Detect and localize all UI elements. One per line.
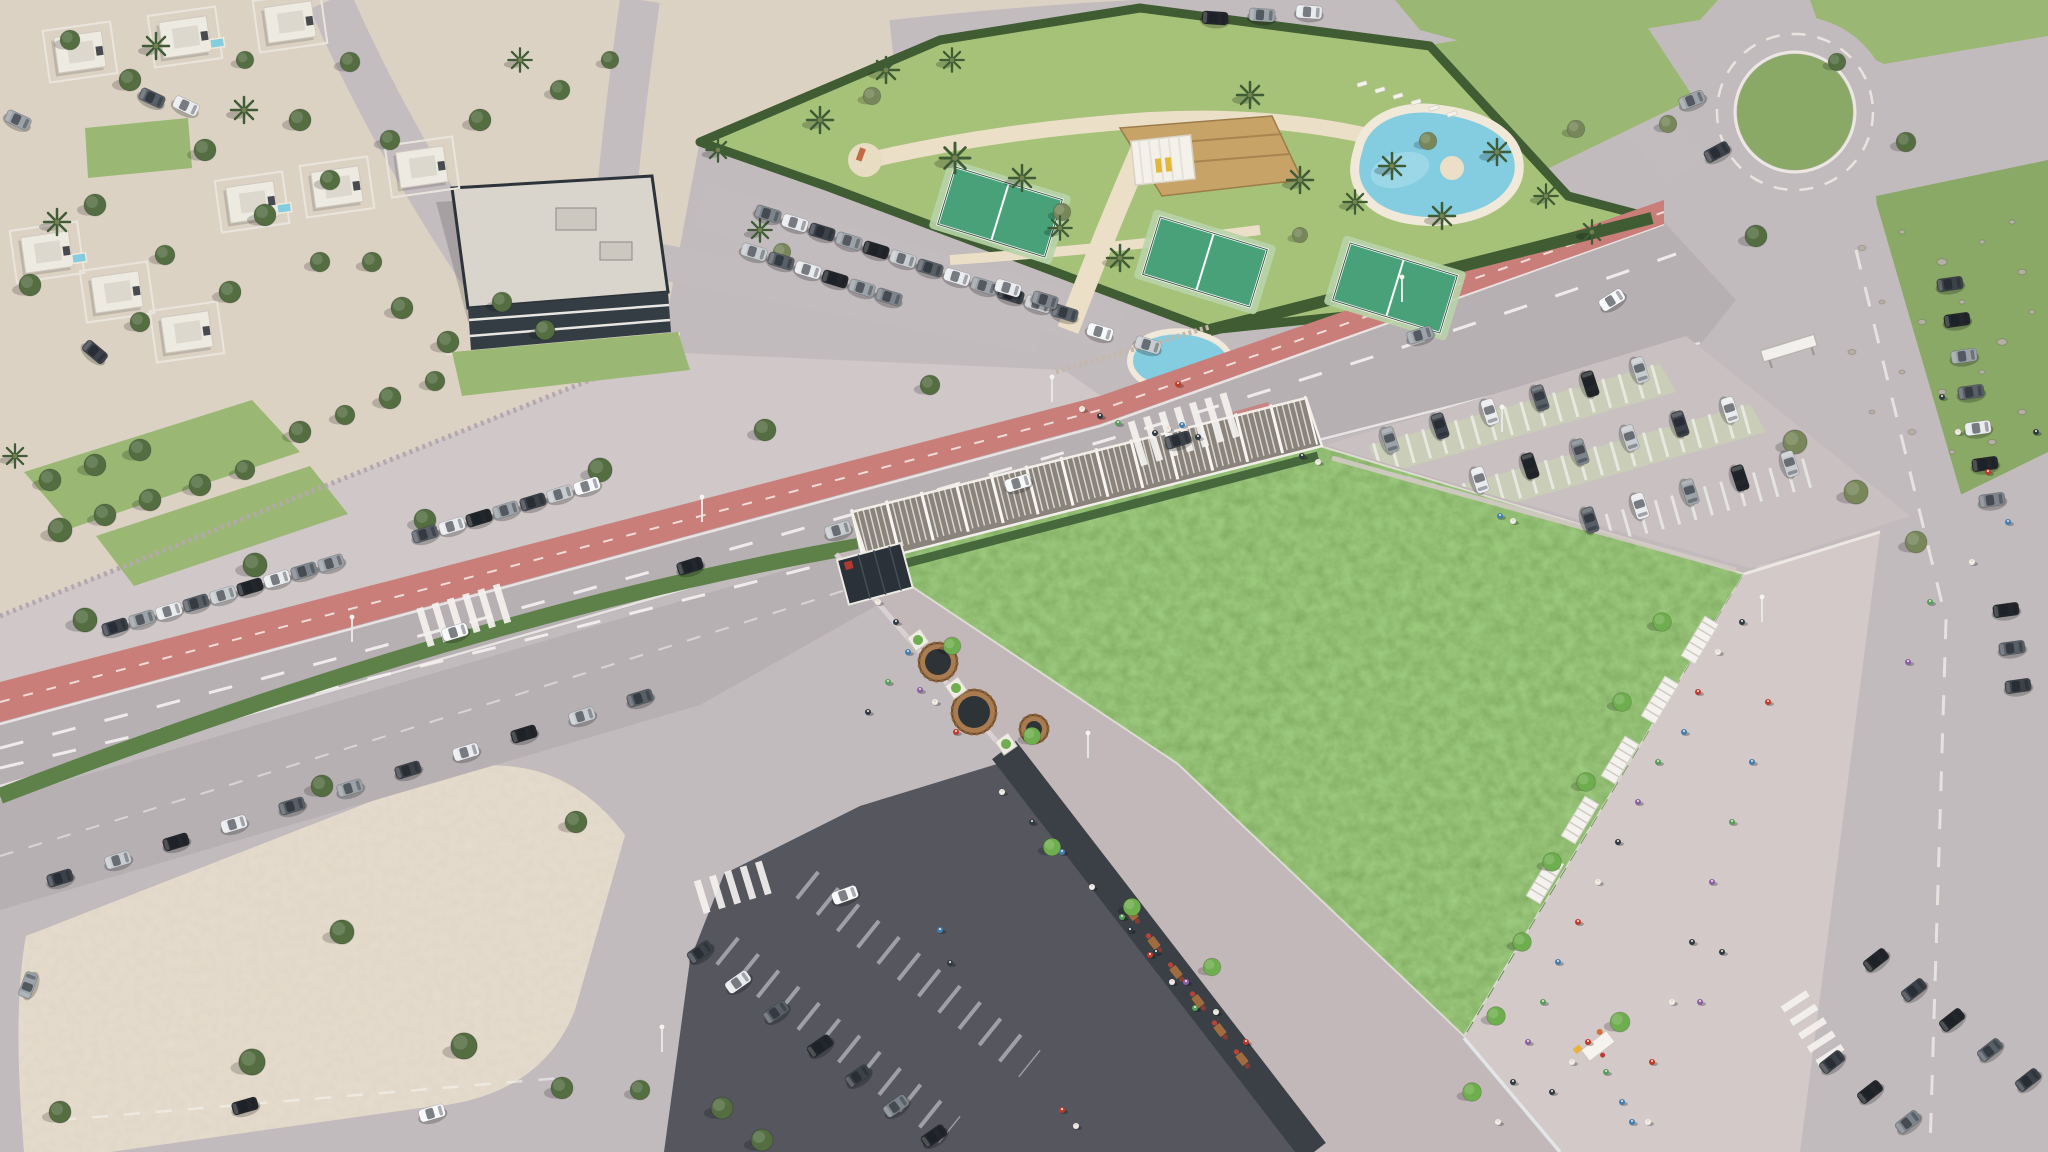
terrace-pod	[952, 690, 996, 734]
rock	[1848, 349, 1856, 354]
villa-pool	[277, 203, 292, 214]
rock	[1899, 370, 1905, 374]
roundabout-grass	[1737, 54, 1853, 170]
rock	[1979, 370, 1985, 374]
apartment-building	[436, 176, 690, 396]
rock	[1908, 429, 1916, 434]
rooftop-unit	[600, 242, 632, 260]
rock	[1869, 410, 1875, 414]
rock	[1899, 230, 1905, 234]
lagoon-pool	[1355, 108, 1520, 221]
rock	[1879, 300, 1885, 304]
pool-island	[1440, 156, 1464, 180]
playground	[848, 143, 882, 177]
rock	[1937, 259, 1947, 266]
rooftop-unit	[556, 208, 596, 230]
rock	[1988, 439, 1996, 444]
rock	[2009, 220, 2015, 224]
villa-pool	[210, 38, 225, 49]
rock	[2018, 409, 2026, 414]
aerial-render	[0, 0, 2048, 1152]
rock	[2029, 310, 2035, 314]
rock	[1858, 245, 1866, 250]
rock	[1938, 389, 1946, 394]
rock	[1959, 300, 1965, 304]
apartment-roof	[452, 176, 668, 308]
rock	[1918, 319, 1926, 324]
rock	[1979, 240, 1985, 244]
rock	[1949, 450, 1955, 454]
rock	[1997, 339, 2007, 346]
aerial-scene	[0, 0, 2048, 1152]
roundabout	[1699, 16, 1891, 208]
rock	[2018, 269, 2026, 274]
lawn-patch	[85, 118, 192, 178]
villa-pool	[72, 253, 87, 264]
